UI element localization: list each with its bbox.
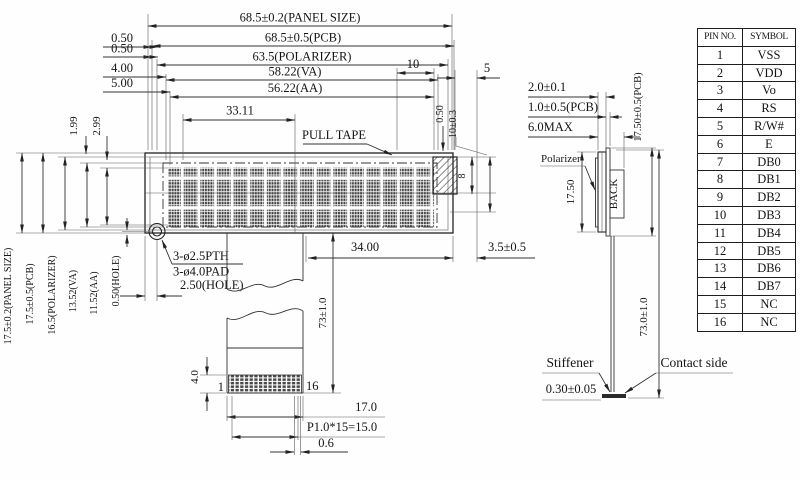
pull-tape-area: [433, 157, 457, 194]
front-view: [145, 153, 496, 240]
dim-polarizer-width: 63.5(POLARIZER): [253, 50, 352, 64]
dim-r8: 8: [457, 174, 468, 179]
pin-row: 9DB2: [698, 189, 796, 207]
pin-number: 6: [698, 135, 743, 153]
dim-offset-500: 5.00: [111, 76, 133, 90]
pin-symbol: R/W#: [743, 117, 796, 135]
pin1-label: 1: [218, 380, 224, 394]
contact-fingers: [229, 375, 302, 393]
dot-matrix: [168, 168, 434, 228]
left-offset-dimensions: 0.50 0.50 4.00 5.00 1.99 2.99: [68, 31, 170, 160]
pin-symbol: DB0: [743, 153, 796, 171]
hole-pth-label: 3-ø2.5PTH: [173, 249, 229, 263]
dim-r050: 0.50: [435, 105, 446, 123]
pin-number: 4: [698, 100, 743, 118]
dim-3400: 34.00: [351, 240, 379, 254]
pin-row: 7DB0: [698, 153, 796, 171]
dim-polarizer-height: 16.5(POLARIZER): [47, 255, 58, 334]
dim-5: 5: [484, 61, 490, 75]
dim-35: 3.5±0.5: [488, 240, 526, 254]
pin-row: 3Vo: [698, 82, 796, 100]
pin-row: 8DB1: [698, 171, 796, 189]
dim-40: 4.0: [189, 370, 201, 384]
dim-glass-thickness: 2.0±0.1: [528, 80, 566, 94]
stiffener-tip: [602, 394, 626, 398]
pin-symbol: DB2: [743, 189, 796, 207]
pin-row: 15NC: [698, 295, 796, 313]
pin-number: 15: [698, 295, 743, 313]
pin-symbol: VSS: [743, 46, 796, 64]
dim-73: 73±1.0: [317, 297, 329, 328]
hole-x-dim: 2.50(HOLE): [180, 278, 244, 292]
symbol-header: SYMBOL: [743, 29, 796, 47]
dim-panel-height: 17.5±0.2(PANEL SIZE): [3, 248, 14, 345]
pin-number: 5: [698, 117, 743, 135]
pin-row: 4RS: [698, 100, 796, 118]
pin-number: 11: [698, 224, 743, 242]
drawing-canvas: 68.5±0.2(PANEL SIZE) 68.5±0.5(PCB) 63.5(…: [0, 0, 800, 480]
dim-pitch: P1.0*15=15.0: [307, 420, 377, 434]
pin-number: 3: [698, 82, 743, 100]
pin-symbol: DB5: [743, 242, 796, 260]
dim-r10: 10±0.3: [448, 110, 459, 138]
dim-total-thickness: 6.0MAX: [528, 120, 573, 134]
pin16-label: 16: [306, 379, 319, 393]
pin-row: 1VSS: [698, 46, 796, 64]
pin-symbol: DB7: [743, 278, 796, 296]
pin-number: 14: [698, 278, 743, 296]
lcd-module-drawing: 68.5±0.2(PANEL SIZE) 68.5±0.5(PCB) 63.5(…: [0, 0, 800, 480]
dim-pcb-width: 68.5±0.5(PCB): [265, 31, 341, 45]
pin-table-header: PIN NO. SYMBOL: [698, 29, 796, 47]
dim-aa-height: 11.52(AA): [89, 271, 100, 314]
dim-3311: 33.11: [226, 104, 254, 118]
pin-symbol: DB3: [743, 206, 796, 224]
pin-row: 2VDD: [698, 64, 796, 82]
pin-row: 16NC: [698, 313, 796, 331]
pin-number: 12: [698, 242, 743, 260]
pin-row: 6E: [698, 135, 796, 153]
hole-pad-label: 3-ø4.0PAD: [173, 265, 229, 279]
dim-offset-050b: 0.50: [111, 42, 133, 56]
dim-aa-width: 56.22(AA): [268, 81, 323, 95]
pin-symbol: DB1: [743, 171, 796, 189]
mounting-hole: [153, 227, 162, 236]
dim-offset-400: 4.00: [111, 61, 133, 75]
left-vertical-dimensions: 17.5±0.2(PANEL SIZE) 17.5±0.5(PCB) 16.5(…: [3, 153, 127, 344]
dim-va-height: 13.52(VA): [68, 270, 79, 312]
dim-pcb-height: 17.5±0.5(PCB): [25, 263, 36, 324]
dim-170: 17.0: [355, 400, 377, 414]
pin-symbol: DB4: [743, 224, 796, 242]
pin-number: 1: [698, 46, 743, 64]
pin-symbol: VDD: [743, 64, 796, 82]
pull-tape-label: PULL TAPE: [302, 128, 366, 142]
pin-symbol: NC: [743, 313, 796, 331]
contact-side-label: Contact side: [660, 355, 727, 370]
pin-row: 5R/W#: [698, 117, 796, 135]
back-label: BACK: [608, 179, 620, 210]
pin-number: 2: [698, 64, 743, 82]
pin-no-header: PIN NO.: [698, 29, 743, 47]
dim-030: 0.30±0.05: [546, 382, 597, 396]
pin-row: 13DB6: [698, 260, 796, 278]
pin-row: 12DB5: [698, 242, 796, 260]
dim-299: 2.99: [91, 116, 103, 136]
dim-199: 1.99: [68, 116, 80, 136]
dim-06: 0.6: [318, 436, 334, 450]
pin-row: 14DB7: [698, 278, 796, 296]
pin-number: 13: [698, 260, 743, 278]
pin-symbol: E: [743, 135, 796, 153]
dim-panel-width: 68.5±0.2(PANEL SIZE): [240, 11, 361, 25]
pin-symbol: NC: [743, 295, 796, 313]
dim-1750-pcb: 17.50±0.5(PCB): [633, 72, 644, 142]
pin-number: 8: [698, 171, 743, 189]
pin-row: 10DB3: [698, 206, 796, 224]
pin-number: 7: [698, 153, 743, 171]
pin-number: 10: [698, 206, 743, 224]
pin-symbol: RS: [743, 100, 796, 118]
dim-1750: 17.50: [565, 179, 577, 204]
pin-symbol: DB6: [743, 260, 796, 278]
dim-hole-vertical: 0.50(HOLE): [111, 256, 122, 307]
stiffener-label: Stiffener: [547, 355, 594, 370]
polarizer-label: Polarizer: [541, 153, 581, 165]
pin-number: 16: [698, 313, 743, 331]
dim-10: 10: [407, 57, 420, 71]
dim-730: 73.0±1.0: [638, 297, 650, 337]
pin-row: 11DB4: [698, 224, 796, 242]
pin-number: 9: [698, 189, 743, 207]
dim-pcb-thickness: 1.0±0.5(PCB): [528, 100, 598, 114]
pin-symbol: Vo: [743, 82, 796, 100]
pin-table: PIN NO. SYMBOL 1VSS 2VDD 3Vo 4RS 5R/W# 6…: [697, 28, 796, 332]
top-dimensions: 68.5±0.2(PANEL SIZE) 68.5±0.5(PCB) 63.5(…: [148, 11, 500, 121]
dim-va-width: 58.22(VA): [269, 65, 322, 79]
